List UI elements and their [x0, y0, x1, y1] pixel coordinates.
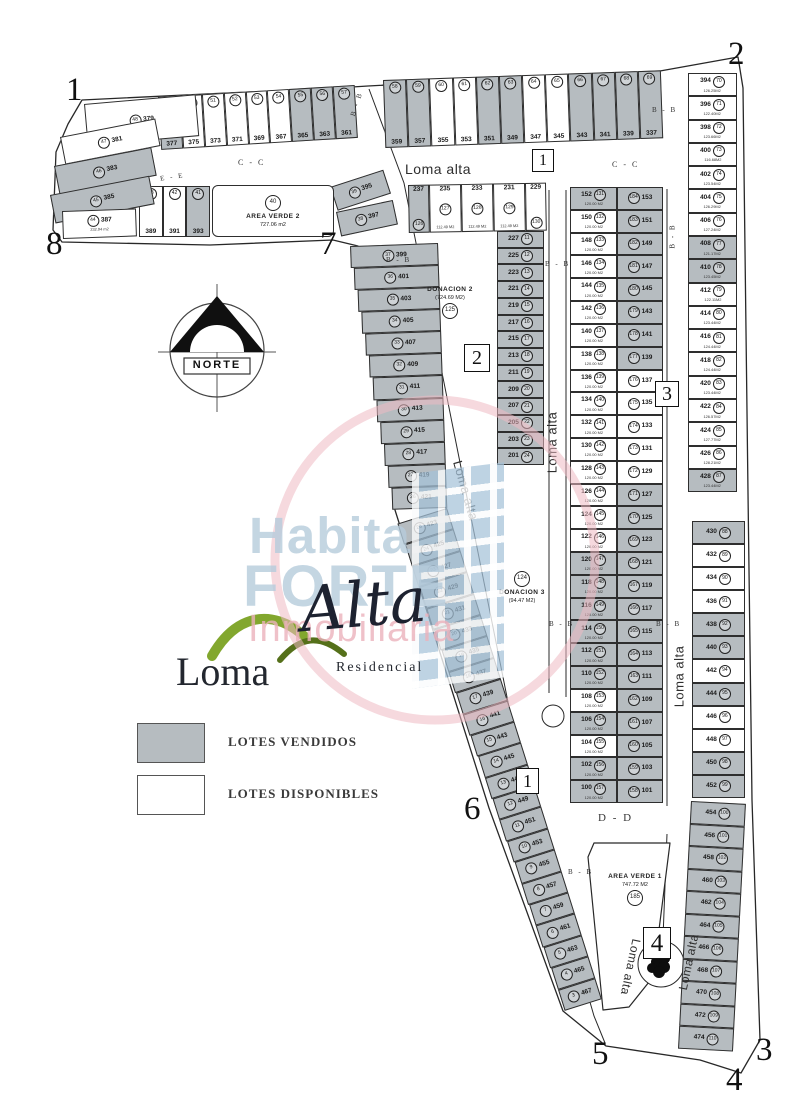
lot-number: 151 [642, 218, 653, 225]
lot-cell-row: 28417 [402, 447, 427, 460]
lot-area: 126.29M2 [704, 206, 721, 210]
lot-id-circle: 37 [382, 250, 394, 262]
lot-id-circle: 73 [713, 145, 725, 157]
lot-cell-421: 26421 [392, 486, 448, 510]
lot-cell-row: 181147 [628, 261, 653, 273]
lot-number: 436 [706, 599, 717, 606]
lot-id-circle: 25 [412, 521, 427, 536]
lot-number: 412 [700, 288, 711, 295]
lot-id-circle: 3 [566, 989, 581, 1004]
lot-cell-403: 35403 [358, 287, 441, 312]
lot-id-circle: 180 [628, 284, 640, 296]
lot-cell-row: 456101 [704, 830, 729, 843]
lot-id-circle: 137 [594, 326, 606, 338]
lot-cell-row: 42485 [700, 425, 725, 437]
lot-number: 117 [642, 606, 653, 613]
lot-cell-103: 159103 [617, 757, 663, 780]
lot-area: 128.21M2 [704, 462, 721, 466]
lot-area: 112.49 M2 [501, 225, 519, 229]
lot-number: 125 [642, 515, 653, 522]
lot-id-circle: 145 [594, 509, 606, 521]
lot-id-circle: 92 [719, 619, 731, 631]
lot-cell-205: 20522 [497, 415, 544, 432]
lot-cell-132: 132141120.00 M2 [570, 415, 617, 438]
lot-cell-row: 44294 [706, 665, 731, 677]
lot-number: 124 [581, 512, 592, 519]
lot-cell-404: 40475126.29M2 [688, 189, 737, 212]
lot-cell-107: 161107 [617, 712, 663, 735]
lot-id-circle: 23 [521, 434, 533, 446]
lot-cell-450: 45098 [692, 752, 745, 775]
lot-number: 355 [438, 137, 449, 144]
lot-cell-139: 177139 [617, 347, 663, 370]
lot-area: 120.00 M2 [584, 568, 602, 572]
lot-id-circle: 173 [628, 443, 640, 455]
lot-id-circle: 99 [719, 780, 731, 792]
lot-number: 227 [508, 236, 519, 243]
lot-cell-row: 40475 [700, 192, 725, 204]
lot-area: 120.00 M2 [584, 408, 602, 412]
lot-cell-111: 163111 [617, 666, 663, 689]
lot-cell-row: 112151 [581, 646, 606, 658]
lot-number: 420 [700, 381, 711, 388]
lot-cell-row: 120147 [581, 554, 606, 566]
lot-id-circle: 161 [628, 717, 640, 729]
lot-cell-418: 41882124.44M2 [688, 352, 737, 375]
lot-cell-row: 172129 [628, 466, 653, 478]
lot-cell-207: 20721 [497, 398, 544, 415]
lot-number: 215 [508, 336, 519, 343]
lot-cell-456: 456101 [689, 824, 745, 849]
lot-cell-422: 42284126.57M2 [688, 399, 737, 422]
lot-cell-402: 40274123.54M2 [688, 166, 737, 189]
lot-cell-row: 20522 [508, 417, 533, 429]
lot-id-circle: 57 [338, 87, 351, 100]
lot-id-circle: 157 [594, 783, 606, 795]
lot-id-circle: 80 [713, 308, 725, 320]
lot-area: 122.40M2 [704, 112, 721, 116]
lot-number: 394 [700, 78, 711, 85]
lot-cell-row: 138138 [581, 349, 606, 361]
lot-id-circle: 69 [643, 72, 655, 84]
lot-cell-460: 460103 [686, 869, 742, 894]
lot-id-circle: 52 [229, 94, 242, 107]
lot-cell-row: 44696 [706, 711, 731, 723]
lot-number: 359 [391, 139, 402, 146]
lot-number: 411 [410, 384, 421, 391]
lot-cell-414: 41480123.44M2 [688, 306, 737, 329]
lot-area: 232.94 m2 [90, 228, 109, 233]
lot-id-circle: 107 [710, 965, 723, 978]
lot-cell-347: 64347 [522, 74, 548, 143]
lot-cell-110: 110152120.00 M2 [570, 666, 617, 689]
lot-area: 120.00 M2 [584, 454, 602, 458]
lot-cell-142: 142136120.00 M2 [570, 301, 617, 324]
lot-number: 121 [642, 560, 653, 567]
lot-number: 432 [706, 552, 717, 559]
lot-cell-row: 472109 [695, 1010, 720, 1023]
lot-cell-126: 126144120.00 M2 [570, 484, 617, 507]
lot-id-circle: 74 [713, 169, 725, 181]
lot-cell-113: 164113 [617, 643, 663, 666]
lot-id-circle: 152 [594, 668, 606, 680]
lot-cell-row: 27419 [404, 469, 429, 482]
lot-id-circle: 15 [521, 300, 533, 312]
lot-number: 343 [576, 132, 587, 139]
lot-cell-row: 44093 [706, 642, 731, 654]
lot-cell-121: 168121 [617, 552, 663, 575]
lot-cell-row: 42686 [700, 448, 725, 460]
lot-cell-row: 102156 [581, 760, 606, 772]
lot-cell-row: 31411 [396, 381, 421, 394]
lot-number: 127 [642, 492, 653, 499]
lot-id-circle: 183 [628, 215, 640, 227]
lot-block-row-b: 5835959357603556135362351633496434765345… [383, 70, 663, 148]
lot-number: 145 [642, 286, 653, 293]
lot-cell-row: 41882 [700, 355, 725, 367]
lot-number: 442 [706, 668, 717, 675]
lot-number: 468 [697, 967, 708, 974]
lot-id-circle: 138 [594, 349, 606, 361]
lot-number: 466 [698, 945, 709, 952]
lot-cell-454: 454100 [690, 801, 746, 826]
lot-cell-359: 58359 [383, 79, 409, 148]
lot-cell-458: 458102 [687, 846, 743, 871]
lot-id-circle: 47 [97, 136, 111, 150]
lot-id-circle: 62 [481, 78, 493, 90]
lot-number: 437 [475, 668, 487, 677]
lot-number: 153 [642, 195, 653, 202]
lot-cell-237: 237126 [408, 185, 430, 233]
lot-cell-413: 30413 [376, 397, 444, 421]
lot-cell-row: 21431 [440, 602, 467, 621]
lot-cell-408: 40877121.17M2 [688, 236, 737, 259]
lot-id-circle: 66 [574, 75, 586, 87]
lot-number: 398 [700, 125, 711, 132]
lot-cell-134: 134140120.00 M2 [570, 392, 617, 415]
lot-id-circle: 75 [713, 192, 725, 204]
lot-area: 120.00 M2 [584, 728, 602, 732]
lot-number: 337 [646, 130, 657, 137]
lot-id-circle: 84 [713, 402, 725, 414]
lot-number: 409 [407, 362, 418, 369]
lot-cell-row: 39872 [700, 122, 725, 134]
lot-cell-417: 28417 [384, 442, 446, 466]
lot-cell-430: 43088 [692, 521, 745, 544]
lot-id-circle: 144 [594, 486, 606, 498]
lot-cell-394: 39470126.25M2 [688, 73, 737, 96]
lot-number: 353 [461, 136, 472, 143]
lot-id-circle: 101 [717, 830, 730, 843]
lot-cell-row: 23427 [426, 560, 453, 579]
lot-area: 120.00 M2 [584, 545, 602, 549]
lot-cell-row: 460103 [702, 875, 727, 888]
lot-id-circle: 108 [709, 988, 722, 1001]
lot-cell-122: 122146120.00 M2 [570, 529, 617, 552]
lot-number: 148 [581, 238, 592, 245]
lot-id-circle: 131 [594, 189, 606, 201]
lot-number: 402 [700, 172, 711, 179]
lot-cell-428: 42887123.44M2 [688, 469, 737, 492]
lot-id-circle: 130 [530, 217, 542, 229]
lot-cell-221: 22114 [497, 281, 544, 298]
lot-cell-203: 20323 [497, 432, 544, 449]
lot-id-circle: 6 [545, 925, 560, 940]
lot-id-circle: 178 [628, 329, 640, 341]
lot-number: 100 [581, 785, 592, 792]
lot-cell-row: 36401 [384, 271, 409, 284]
lot-cell-row: 40676 [700, 215, 725, 227]
lot-id-circle: 20 [521, 384, 533, 396]
lot-cell-351: 62351 [476, 76, 502, 145]
lot-number: 472 [695, 1012, 706, 1019]
lot-id-circle: 146 [594, 532, 606, 544]
lot-cell-row: 21119 [508, 367, 533, 379]
lot-cell-row: 20323 [508, 434, 533, 446]
lot-id-circle: 176 [628, 375, 640, 387]
lot-number: 111 [642, 674, 652, 681]
lot-number: 418 [700, 358, 711, 365]
lot-id-circle: 160 [628, 740, 640, 752]
lot-number: 107 [642, 720, 653, 727]
lot-number: 400 [700, 148, 711, 155]
lot-id-circle: 38 [354, 212, 368, 226]
lot-cell-row: 44387 [87, 214, 112, 227]
lot-id-circle: 158 [628, 786, 640, 798]
lot-id-circle: 21 [521, 401, 533, 413]
lot-number: 385 [103, 194, 115, 202]
lot-cell-row: 40877 [700, 239, 725, 251]
lot-number: 118 [581, 580, 592, 587]
lot-number: 219 [508, 303, 519, 310]
lot-cell-row: 148133 [581, 235, 606, 247]
lot-id-circle: 12 [521, 250, 533, 262]
lot-area: 120.00 M2 [584, 340, 602, 344]
lot-number: 134 [581, 397, 592, 404]
lot-id-circle: 171 [628, 489, 640, 501]
lot-cell-209: 20920 [497, 381, 544, 398]
lot-number: 211 [508, 370, 519, 377]
lot-id-circle: 55 [294, 90, 307, 103]
lot-id-circle: 17 [468, 691, 483, 706]
lot-number: 135 [642, 400, 653, 407]
lot-id-circle: 128 [471, 202, 483, 214]
lot-id-circle: 159 [628, 763, 640, 775]
lot-cell-row: 41279 [700, 285, 725, 297]
lot-area: 120.00 M2 [584, 796, 602, 800]
lot-cell-357: 59357 [406, 78, 432, 147]
lot-id-circle: 35 [386, 294, 398, 306]
lot-cell-407: 33407 [365, 331, 442, 356]
lot-cell-row: 136139 [581, 372, 606, 384]
lot-number: 405 [403, 318, 414, 325]
lot-cell-148: 148133120.00 M2 [570, 233, 617, 256]
lot-number: 465 [573, 966, 585, 975]
lot-id-circle: 134 [594, 258, 606, 270]
lot-cell-143: 179143 [617, 301, 663, 324]
lot-number: 120 [581, 557, 592, 564]
lot-id-circle: 18 [461, 670, 476, 685]
lot-area: 120.00 M2 [584, 249, 602, 253]
lot-id-circle: 179 [628, 306, 640, 318]
lot-number: 415 [414, 428, 425, 435]
lot-id-circle: 109 [707, 1010, 720, 1023]
lot-id-circle: 105 [712, 920, 725, 933]
lot-number: 123 [642, 537, 653, 544]
lot-id-circle: 95 [719, 688, 731, 700]
lot-cell-row: 173131 [628, 443, 653, 455]
lot-number: 361 [341, 130, 352, 137]
lot-cell-row: 466106 [698, 942, 723, 955]
lot-cell-152: 152131120.00 M2 [570, 187, 617, 210]
lot-number: 365 [297, 132, 308, 139]
lot-number: 104 [581, 740, 592, 747]
lot-cell-row: 7459 [538, 900, 565, 919]
lot-id-circle: 126 [413, 219, 425, 231]
lot-id-circle: 24 [419, 542, 434, 557]
lot-id-circle: 42 [169, 188, 181, 200]
lot-number: 138 [581, 352, 592, 359]
lot-cell-row: 21517 [508, 334, 533, 346]
lot-number: 369 [254, 135, 265, 142]
lot-cell-row: 104155 [581, 737, 606, 749]
lot-id-circle: 9 [524, 861, 539, 876]
lot-cell-row: 26421 [407, 491, 432, 504]
lot-id-circle: 172 [628, 466, 640, 478]
lot-number: 391 [169, 229, 180, 236]
lot-id-circle: 14 [489, 755, 504, 770]
lot-number: 103 [642, 765, 653, 772]
lot-number: 137 [642, 378, 653, 385]
lot-cell-row: 167119 [628, 580, 653, 592]
lot-id-circle: 34 [389, 316, 401, 328]
lot-number: 381 [111, 136, 123, 144]
lot-number: 467 [581, 987, 593, 996]
lot-cell-row: 43691 [706, 596, 731, 608]
lot-area: 120.00 M2 [584, 203, 602, 207]
lot-id-circle: 45 [89, 194, 103, 208]
lot-area: 120.00 M2 [584, 682, 602, 686]
lot-cell-470: 470108 [680, 981, 736, 1006]
lot-cell-219: 21915 [497, 298, 544, 315]
lot-id-circle: 54 [272, 91, 285, 104]
lot-cell-row: 42083 [700, 378, 725, 390]
lot-id-circle: 5 [552, 946, 567, 961]
lot-cell-row: 40274 [700, 169, 725, 181]
lot-cell-row: 29415 [400, 425, 425, 438]
lot-number: 451 [524, 817, 536, 826]
lot-number: 454 [705, 810, 716, 817]
lot-cell-233: 233128112.49 M2 [461, 184, 494, 233]
lot-cell-row: 161107 [628, 717, 653, 729]
lot-cell-411: 31411 [373, 375, 444, 400]
lot-block-col-2: 4308843289434904369143892440934429444495… [692, 521, 745, 798]
lot-number: 439 [482, 690, 494, 699]
lot-cell-406: 40676127.24M2 [688, 213, 737, 236]
lot-cell-339: 68339 [615, 71, 641, 140]
lot-cell-140: 140137120.00 M2 [570, 324, 617, 347]
lot-cell-369: 53369 [245, 90, 270, 144]
lot-cell-108: 108153120.00 M2 [570, 689, 617, 712]
lot-area: 120.00 M2 [584, 591, 602, 595]
lot-cell-426: 42686128.21M2 [688, 446, 737, 469]
lot-number: 445 [503, 754, 515, 763]
lot-cell-109: 162109 [617, 689, 663, 712]
lot-id-circle: 94 [719, 665, 731, 677]
lot-number: 425 [433, 541, 445, 550]
lot-cell-371: 52371 [224, 92, 249, 146]
lot-area: 120.00 M2 [584, 317, 602, 321]
lot-id-circle: 110 [706, 1033, 719, 1046]
lot-cell-119: 167119 [617, 575, 663, 598]
lot-id-circle: 140 [594, 395, 606, 407]
lot-cell-151: 183151 [617, 210, 663, 233]
lot-number: 115 [642, 629, 653, 636]
lot-id-circle: 13 [521, 267, 533, 279]
plat-map: 4937750375513735237153369543675536556363… [0, 0, 800, 1109]
lot-number: 433 [461, 626, 473, 635]
lot-cell-row: 470108 [696, 987, 721, 1000]
lot-cell-464: 464105 [684, 914, 740, 939]
lot-cell-row: 42284 [700, 402, 725, 414]
lot-number: 450 [706, 760, 717, 767]
lot-cell-row: 144135 [581, 281, 606, 293]
lot-number: 428 [700, 474, 711, 481]
lot-id-circle: 135 [594, 281, 606, 293]
lot-id-circle: 133 [594, 235, 606, 247]
lot-id-circle: 27 [404, 470, 416, 482]
lot-cell-100: 100157120.00 M2 [570, 780, 617, 803]
lot-area: 120.00 M2 [584, 522, 602, 526]
lot-cell-row: 45299 [706, 780, 731, 792]
lot-id-circle: 170 [628, 512, 640, 524]
lot-cell-337: 69337 [638, 70, 664, 139]
lot-number: 458 [703, 855, 714, 862]
lot-cell-row: 21915 [508, 300, 533, 312]
lot-id-circle: 8 [531, 882, 546, 897]
lot-cell-144: 144135120.00 M2 [570, 278, 617, 301]
lot-number: 441 [489, 711, 501, 720]
lot-id-circle: 162 [628, 694, 640, 706]
lot-id-circle: 149 [594, 600, 606, 612]
lot-cell-row: 106154 [581, 714, 606, 726]
lot-number: 459 [552, 902, 564, 911]
lot-number: 102 [581, 762, 592, 769]
lot-number: 393 [193, 229, 204, 236]
lot-cell-225: 22512 [497, 248, 544, 265]
lot-cell-row: 166117 [628, 603, 653, 615]
lot-number: 399 [396, 252, 407, 259]
lot-id-circle: 103 [714, 875, 727, 888]
lot-cell-373: 51373 [202, 93, 227, 147]
lot-cell-419: 27419 [388, 464, 447, 488]
lot-area: 120.00 M2 [584, 705, 602, 709]
lot-id-circle: 167 [628, 580, 640, 592]
lot-number: 395 [361, 183, 373, 193]
lot-number: 140 [581, 329, 592, 336]
lot-id-circle: 87 [713, 471, 725, 483]
lot-area: 120.00 M2 [584, 431, 602, 435]
lot-cell-row: 12449 [503, 793, 530, 812]
lot-cell-row: 163111 [628, 671, 652, 683]
lot-id-circle: 98 [719, 757, 731, 769]
lot-cell-436: 43691 [692, 590, 745, 613]
lot-cell-104: 104155120.00 M2 [570, 735, 617, 758]
lot-number: 113 [642, 651, 653, 658]
lot-cell-row: 3467 [566, 985, 593, 1004]
lot-cell-363: 56363 [311, 86, 336, 140]
lot-cell-row: 468107 [697, 965, 722, 978]
